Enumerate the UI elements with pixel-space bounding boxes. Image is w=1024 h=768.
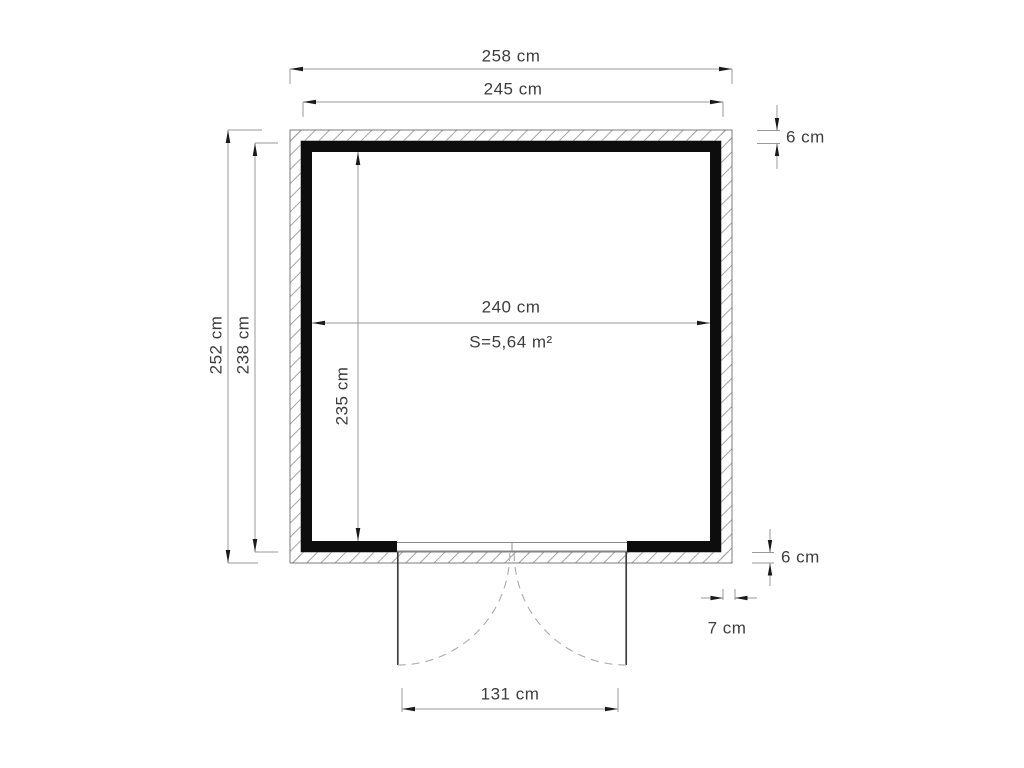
dim-wall-thickness-bottom [752, 529, 774, 586]
door-threshold [397, 543, 627, 553]
dim-wall-thickness-top [757, 105, 780, 169]
inner-width-label: 240 cm [482, 299, 541, 316]
door-width-label: 131 cm [481, 686, 540, 703]
frame-height-label: 238 cm [235, 316, 252, 375]
door-swing-arc-left [398, 553, 510, 665]
wall-thickness-top-label: 6 cm [786, 129, 825, 146]
dim-inner-height [356, 152, 361, 541]
dim-inner-width [312, 321, 710, 326]
wall-offset-label: 7 cm [708, 620, 747, 637]
inner-height-label: 235 cm [334, 367, 351, 426]
dim-frame-width [303, 100, 723, 117]
wall-thickness-bottom-label: 6 cm [781, 549, 820, 566]
floor-plan-drawing [0, 0, 1024, 768]
floor-area-label: S=5,64 m² [469, 334, 552, 351]
outer-width-label: 258 cm [482, 48, 541, 65]
frame-width-label: 245 cm [484, 81, 543, 98]
technical-drawing-page: 258 cm 245 cm 6 cm 252 cm 238 cm 240 cm … [0, 0, 1024, 768]
dim-frame-height [253, 143, 278, 552]
dim-wall-offset [701, 589, 757, 600]
door-swing-arc-right [514, 553, 626, 665]
outer-height-label: 252 cm [208, 316, 225, 375]
